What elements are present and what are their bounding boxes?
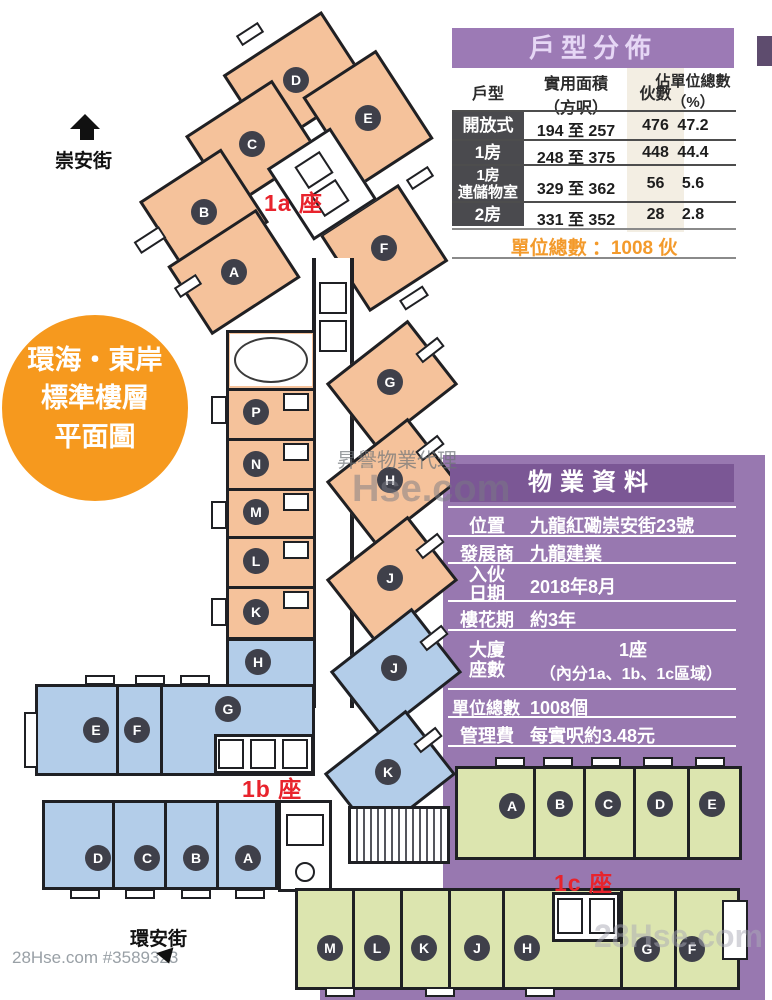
lift-box [319,282,347,314]
wall [226,536,316,539]
unit-table-row-pct: 47.2 [660,117,726,135]
unit-label-1c-G: G [634,936,660,962]
unit-label-1b-D: D [85,845,111,871]
unit-table-row-area: 329 至 362 [524,175,628,199]
property-row-label: 入伙 日期 [450,566,524,604]
unit-table-row-area: 331 至 352 [524,206,628,230]
unit-label-1b-G: G [215,696,241,722]
bathroom [283,393,309,411]
divider [448,562,736,564]
property-row-value-line1: 1座 [530,636,736,662]
unit-label-1a-D: D [283,67,309,93]
lift-box [557,898,583,934]
unit-label-1c-E: E [699,791,725,817]
unit-label-1a-A: A [221,259,247,285]
unit-label-1c-F: F [679,936,705,962]
property-row-label: 大廈 座數 [450,640,524,680]
bathroom [283,443,309,461]
wall [533,766,536,860]
divider [448,535,736,537]
divider [448,688,736,690]
lift-box [589,898,615,934]
divider [452,228,736,230]
unit-label-1a-K: K [243,599,269,625]
unit-table-footer: 單位總數 ：1008 伙 [452,233,736,260]
balcony [181,889,211,899]
wall [226,388,316,391]
badge-line2: 標準樓層 [2,379,188,417]
wall [502,888,505,990]
section-label-1a: 1a 座 [264,184,323,218]
section-label-1b: 1b 座 [242,770,302,804]
divider [448,506,736,508]
balcony [495,757,525,767]
unit-label-1c-A: A [499,793,525,819]
unit-table-row-type: 1房 連儲物室 [452,166,524,201]
wall [116,684,119,776]
unit-label-1a-F: F [371,235,397,261]
balcony [211,598,227,626]
unit-label-1b-F: F [124,717,150,743]
unit-label-1b-E: E [83,717,109,743]
unit-table-row-pct: 5.6 [660,175,726,193]
unit-label-1b-K: K [375,759,401,785]
balcony [425,987,455,997]
unit-label-1b-A: A [235,845,261,871]
balcony [235,889,265,899]
bathroom [283,541,309,559]
unit-table-row-pct: 2.8 [660,206,726,224]
property-table-title: 物業資料 [450,464,734,502]
lift-box [282,739,308,769]
balcony [325,987,355,997]
street-label-top: 崇安街 [55,146,112,173]
wall [448,888,451,990]
wall [226,586,316,589]
balcony [125,889,155,899]
unit-label-1b-J: J [381,655,407,681]
wall [226,488,316,491]
unit-label-1c-D: D [647,791,673,817]
balcony [406,166,434,190]
section-label-1c: 1c 座 [554,864,613,898]
unit-label-1a-M: M [243,499,269,525]
balcony [70,889,100,899]
wall [400,888,403,990]
unit-label-1c-K: K [411,935,437,961]
property-row-value: 2018年8月 [530,573,736,599]
stairwell-ellipse [234,337,308,383]
unit-label-1a-J: J [377,565,403,591]
project-badge: 環海・東岸 標準樓層 平面圖 [0,311,192,505]
wall [216,800,219,890]
balcony [236,22,264,46]
balcony [180,675,210,685]
wall [164,800,167,890]
badge-line1: 環海・東岸 [2,341,188,379]
unit-label-1a-G: G [377,369,403,395]
wall [226,438,316,441]
wall [112,800,115,890]
balcony [525,987,555,997]
unit-table-row-type: 2房 [452,203,524,226]
unit-table-row-area: 194 至 257 [524,117,628,141]
divider [448,600,736,602]
unit-label-1a-N: N [243,451,269,477]
bathroom [283,591,309,609]
unit-label-1a-H: H [377,467,403,493]
spiral-stair-icon [295,862,315,882]
edge-artifact [757,36,772,66]
balcony [135,675,165,685]
stairwell-1b [348,806,450,864]
unit-label-1a-E: E [355,105,381,131]
watermark-listing-id: 28Hse.com #3589323 [12,948,178,968]
wall [687,766,690,860]
balcony [211,501,227,529]
wall [583,766,586,860]
unit-label-1c-M: M [317,935,343,961]
balcony [134,226,167,254]
unit-label-1a-B: B [191,199,217,225]
divider [448,716,736,718]
unit-label-1c-C: C [595,791,621,817]
wall [620,888,623,990]
badge-line3: 平面圖 [2,418,188,456]
north-arrow-stem [80,129,94,140]
unit-table-row-type: 1房 [452,141,524,164]
unit-table-col-pct: 佔單位總數 （%） [650,70,736,112]
balcony [543,757,573,767]
unit-label-1b-B: B [183,845,209,871]
north-arrow-icon [70,114,100,129]
balcony [643,757,673,767]
unit-table-row-pct: 44.4 [660,144,726,162]
unit-table-col-type: 戶型 [452,80,524,104]
unit-label-1a-L: L [243,548,269,574]
lift-box [218,739,244,769]
divider [452,257,736,259]
unit-table-row-type: 開放式 [452,112,524,139]
unit-label-1a-P: P [243,399,269,425]
divider [448,629,736,631]
unit-label-1b-H: H [245,649,271,675]
wall [352,888,355,990]
balcony [211,396,227,424]
unit-label-1a-C: C [239,131,265,157]
property-row-value-line2: （內分1a、1b、1c區域） [524,660,738,684]
wall [633,766,636,860]
balcony [24,712,38,768]
unit-label-1c-J: J [464,935,490,961]
lift-box [319,320,347,352]
unit-label-1b-C: C [134,845,160,871]
bathroom [283,493,309,511]
unit-label-1c-H: H [514,935,540,961]
wall [160,684,163,776]
utility-box [722,900,748,960]
wall [674,888,677,990]
lift-box [286,814,324,846]
balcony [591,757,621,767]
lift-box [250,739,276,769]
street-label-bottom: 環安街 [130,924,187,951]
balcony [695,757,725,767]
unit-label-1c-B: B [547,791,573,817]
unit-label-1c-L: L [364,935,390,961]
balcony [85,675,115,685]
floorplan-page: A B C D E F P N M L K G H J H E F G D C … [0,0,772,1000]
divider [448,745,736,747]
unit-table-title: 戶型分佈 [452,28,734,68]
